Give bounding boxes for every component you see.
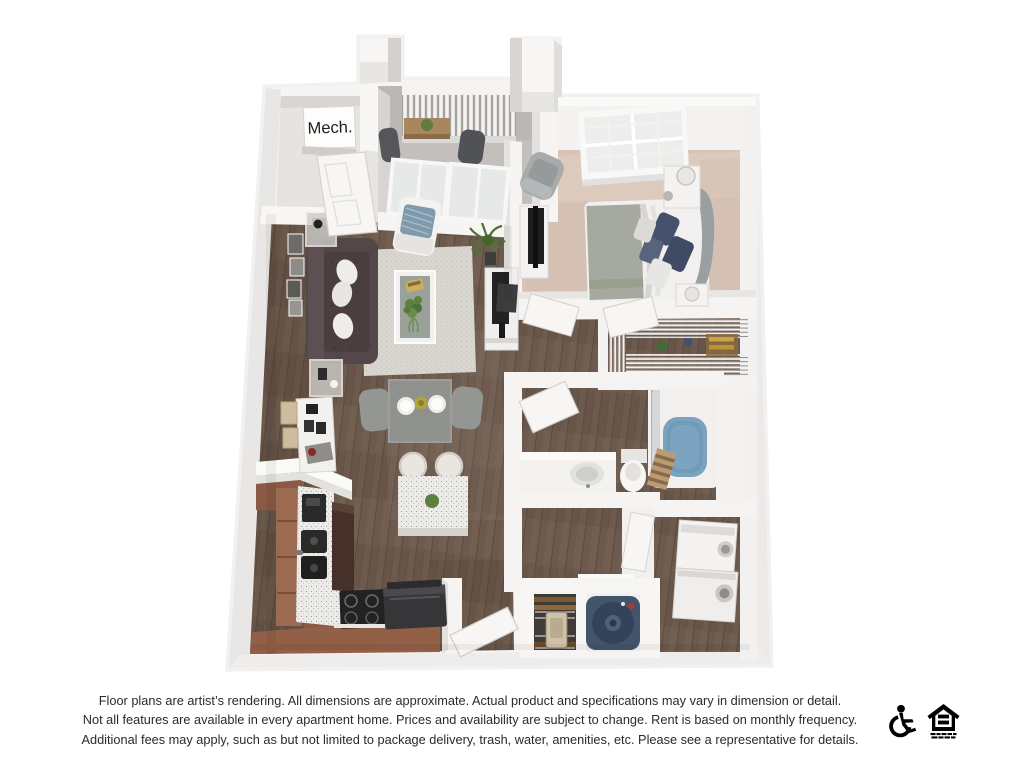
svg-text:Mech.: Mech. xyxy=(307,118,353,138)
